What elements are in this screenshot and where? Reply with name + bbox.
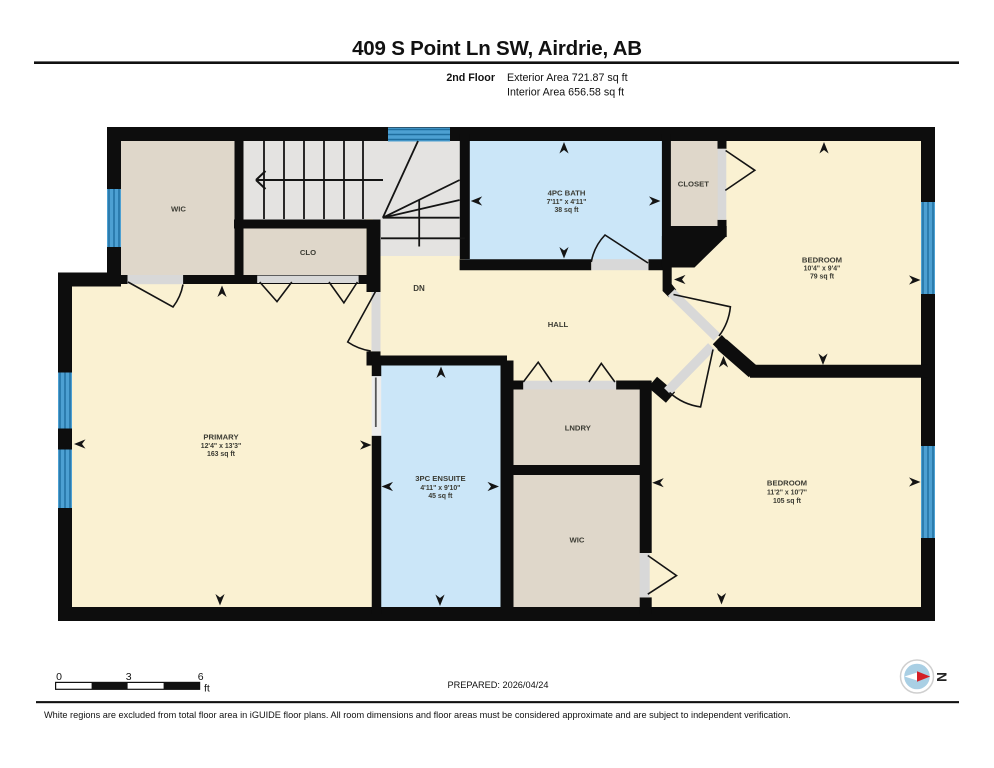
svg-text:163 sq ft: 163 sq ft <box>207 451 236 458</box>
svg-text:Exterior Area 721.87 sq ft: Exterior Area 721.87 sq ft <box>507 72 628 84</box>
svg-text:105 sq ft: 105 sq ft <box>773 498 802 505</box>
svg-text:DN: DN <box>413 284 425 293</box>
svg-text:Interior Area 656.58 sq ft: Interior Area 656.58 sq ft <box>507 87 624 99</box>
svg-text:7'11" x 4'11": 7'11" x 4'11" <box>547 199 587 206</box>
svg-text:2nd Floor: 2nd Floor <box>446 72 495 84</box>
svg-text:45 sq ft: 45 sq ft <box>428 493 453 500</box>
svg-text:HALL: HALL <box>548 320 569 329</box>
svg-text:11'2" x 10'7": 11'2" x 10'7" <box>767 490 807 497</box>
svg-text:ft: ft <box>204 683 210 695</box>
svg-text:6: 6 <box>198 671 204 683</box>
svg-text:79 sq ft: 79 sq ft <box>810 273 835 280</box>
svg-text:38 sq ft: 38 sq ft <box>554 207 579 214</box>
svg-text:0: 0 <box>56 671 62 683</box>
svg-text:WIC: WIC <box>171 204 186 213</box>
svg-text:3PC ENSUITE: 3PC ENSUITE <box>415 474 465 483</box>
svg-text:CLO: CLO <box>300 248 316 257</box>
svg-text:BEDROOM: BEDROOM <box>802 256 842 265</box>
svg-text:BEDROOM: BEDROOM <box>767 479 807 488</box>
svg-text:CLOSET: CLOSET <box>678 180 709 189</box>
svg-text:PREPARED: 2026/04/24: PREPARED: 2026/04/24 <box>448 680 549 690</box>
svg-text:N: N <box>934 672 949 682</box>
svg-text:4PC BATH: 4PC BATH <box>548 189 586 198</box>
svg-text:3: 3 <box>126 671 132 683</box>
svg-text:409 S Point Ln SW, Airdrie, AB: 409 S Point Ln SW, Airdrie, AB <box>352 37 642 60</box>
svg-text:PRIMARY: PRIMARY <box>203 433 238 442</box>
svg-text:WIC: WIC <box>570 536 585 545</box>
svg-text:10'4" x 9'4": 10'4" x 9'4" <box>804 266 841 273</box>
svg-text:LNDRY: LNDRY <box>565 423 591 432</box>
svg-text:4'11" x 9'10": 4'11" x 9'10" <box>420 485 460 492</box>
svg-text:12'4" x 13'3": 12'4" x 13'3" <box>201 443 241 450</box>
svg-text:White regions are excluded fro: White regions are excluded from total fl… <box>44 710 791 720</box>
